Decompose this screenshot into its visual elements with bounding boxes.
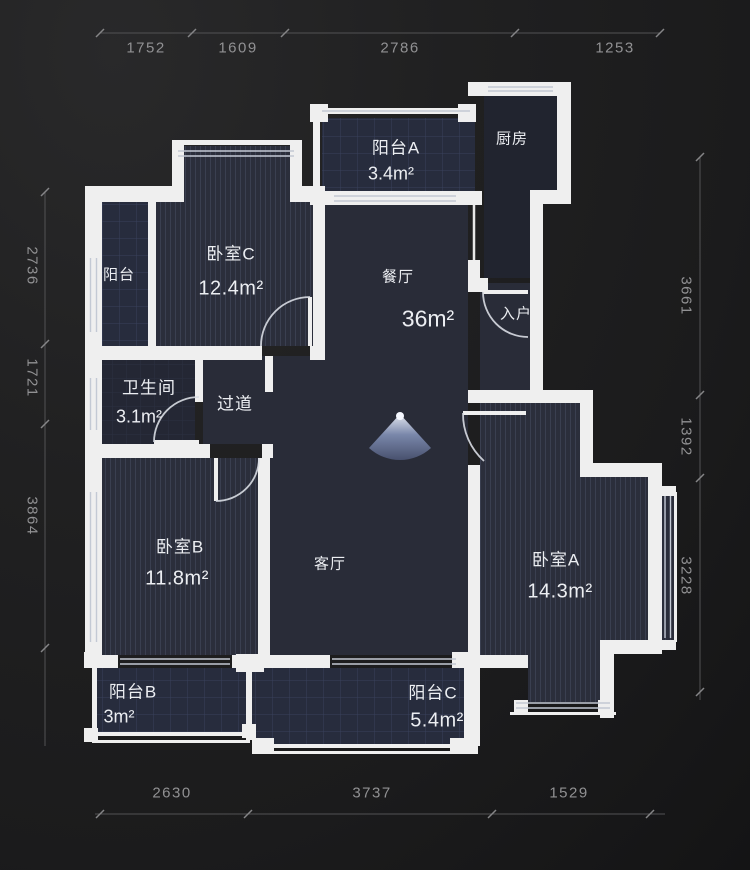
room-label-balcony-left: 阳台 — [103, 264, 135, 285]
room-area-balcony-b: 3m² — [104, 707, 135, 728]
dim-right-3: 3228 — [678, 556, 695, 595]
dim-right-2: 1392 — [678, 417, 695, 456]
dim-top-1: 1752 — [126, 40, 165, 57]
floorplan-canvas — [0, 0, 750, 870]
room-area-bathroom: 3.1m² — [116, 407, 162, 428]
dim-top-4: 1253 — [595, 40, 634, 57]
floorplan-viewer: 阳台 卧室C 12.4m² 阳台A 3.4m² 厨房 餐厅 36m² 入户 卫生… — [0, 0, 750, 870]
dim-bottom-3: 1529 — [549, 785, 588, 802]
room-area-bedroom-c: 12.4m² — [198, 278, 263, 301]
room-area-balcony-a: 3.4m² — [368, 164, 414, 185]
dim-right-1: 3661 — [678, 276, 695, 315]
room-label-bedroom-b: 卧室B — [156, 533, 204, 558]
dim-bottom-1: 2630 — [152, 785, 191, 802]
room-label-kitchen: 厨房 — [496, 128, 528, 149]
dim-top-2: 1609 — [218, 40, 257, 57]
room-label-bedroom-a: 卧室A — [532, 546, 580, 571]
dim-left-1: 2736 — [24, 246, 41, 285]
room-label-dining: 餐厅 — [382, 266, 414, 287]
dim-bottom-2: 3737 — [352, 785, 391, 802]
room-area-bedroom-b: 11.8m² — [145, 568, 209, 591]
room-label-bedroom-c: 卧室C — [206, 240, 255, 265]
room-area-dining: 36m² — [402, 306, 454, 333]
dim-left-2: 1721 — [24, 358, 41, 397]
room-label-entry: 入户 — [500, 303, 532, 324]
room-area-bedroom-a: 14.3m² — [527, 581, 592, 604]
dim-top-3: 2786 — [380, 40, 419, 57]
dim-left-3: 3864 — [24, 496, 41, 535]
room-label-balcony-a: 阳台A — [372, 134, 420, 159]
room-label-living: 客厅 — [314, 553, 346, 574]
room-label-bathroom: 卫生间 — [122, 374, 176, 399]
room-label-balcony-b: 阳台B — [109, 678, 157, 703]
room-label-hallway: 过道 — [217, 390, 253, 415]
room-area-balcony-c: 5.4m² — [410, 710, 464, 733]
room-label-balcony-c: 阳台C — [408, 679, 457, 704]
